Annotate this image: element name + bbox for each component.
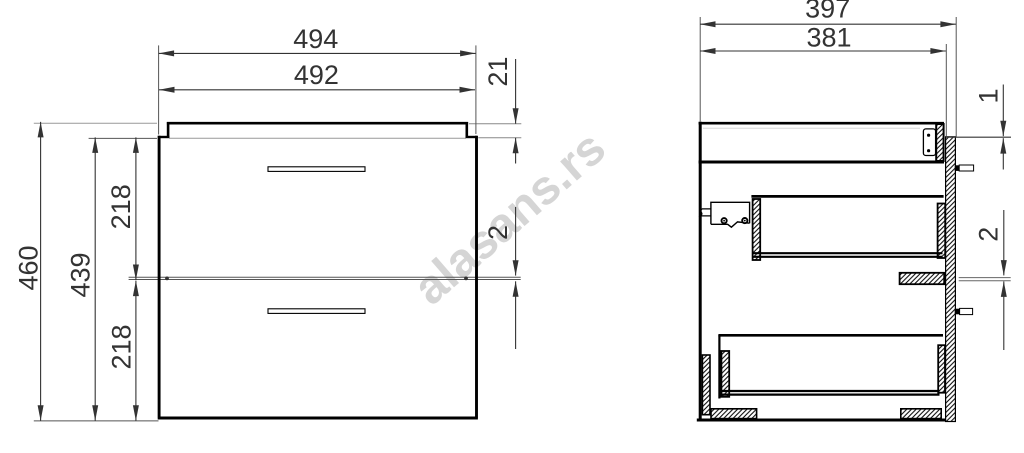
svg-text:218: 218 <box>106 184 136 229</box>
svg-text:492: 492 <box>294 60 339 90</box>
svg-text:1: 1 <box>974 88 1004 103</box>
svg-text:397: 397 <box>805 0 850 24</box>
svg-text:218: 218 <box>106 324 136 369</box>
svg-text:439: 439 <box>65 252 95 297</box>
svg-text:2: 2 <box>483 225 513 240</box>
svg-text:381: 381 <box>806 22 851 52</box>
svg-text:21: 21 <box>483 57 513 87</box>
svg-text:460: 460 <box>13 245 43 290</box>
svg-text:494: 494 <box>293 24 338 54</box>
svg-text:2: 2 <box>974 227 1004 242</box>
